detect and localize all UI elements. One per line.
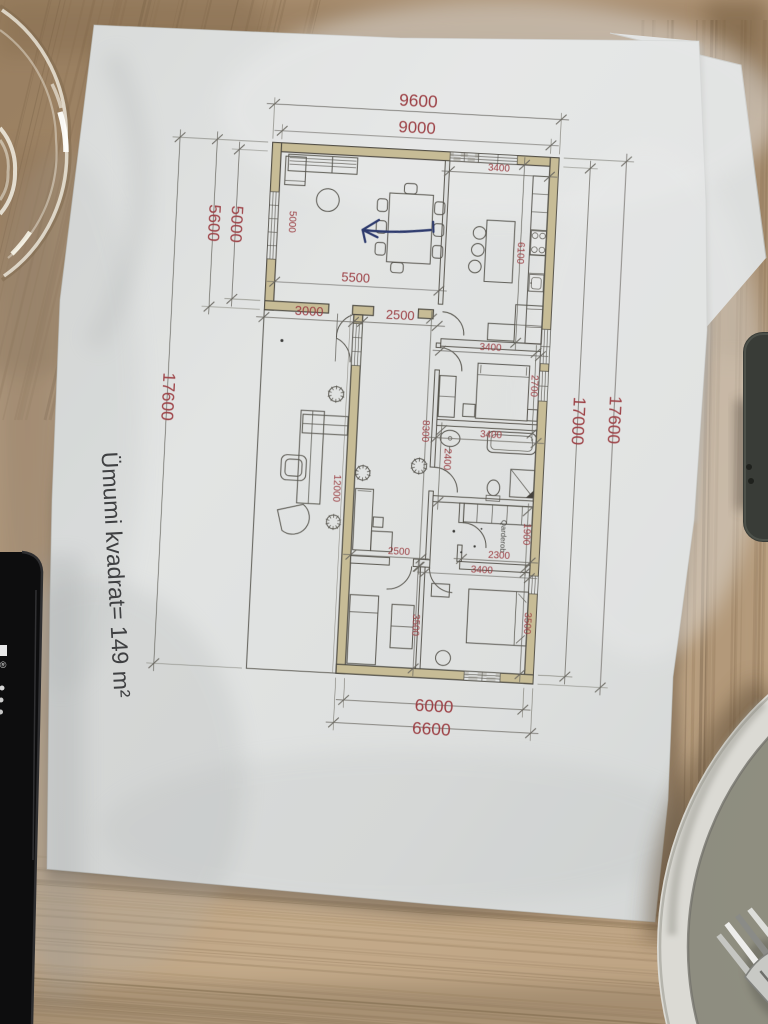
svg-text:3400: 3400 [480,429,503,441]
svg-text:6100: 6100 [514,242,526,265]
svg-text:9000: 9000 [398,117,436,138]
svg-text:2500: 2500 [388,546,411,558]
svg-text:9600: 9600 [399,90,439,112]
svg-text:®: ® [0,660,7,670]
svg-text:5600: 5600 [204,204,225,242]
svg-text:12000: 12000 [330,474,342,503]
svg-text:6600: 6600 [412,718,452,740]
svg-text:3500: 3500 [521,612,533,635]
svg-text:2700: 2700 [528,375,540,398]
svg-text:2300: 2300 [488,550,511,562]
svg-text:17600: 17600 [157,372,179,421]
svg-text:3400: 3400 [479,342,502,354]
svg-text:17600: 17600 [604,395,626,444]
svg-text:8300: 8300 [419,420,431,443]
svg-text:5500: 5500 [341,269,370,286]
svg-text:5000: 5000 [286,211,298,234]
svg-text:3400: 3400 [488,163,511,175]
svg-text:3400: 3400 [471,564,494,576]
svg-text:3500: 3500 [409,614,421,637]
svg-text:Qarderob: Qarderob [498,520,509,553]
svg-text:5000: 5000 [226,205,247,243]
svg-text:2400: 2400 [441,448,453,471]
svg-text:6000: 6000 [414,695,454,717]
svg-text:2500: 2500 [386,307,415,324]
svg-text:3000: 3000 [294,303,323,320]
svg-text:17000: 17000 [568,396,590,445]
svg-text:1900: 1900 [520,523,532,546]
